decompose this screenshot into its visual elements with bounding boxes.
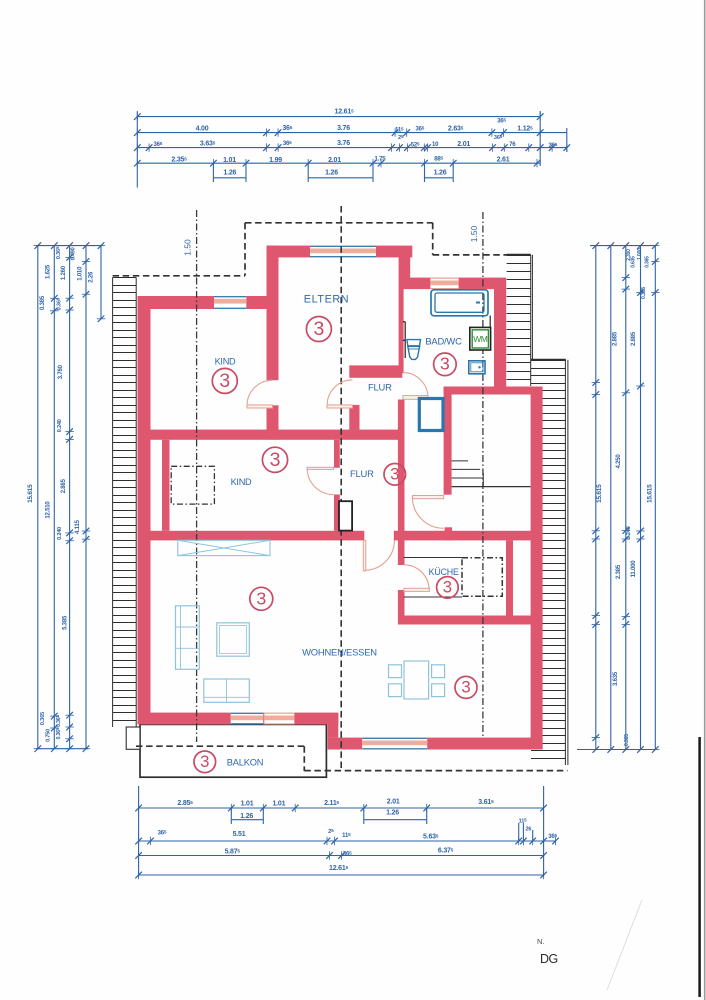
svg-text:1.010: 1.010	[77, 266, 83, 281]
svg-text:0.365: 0.365	[54, 715, 61, 727]
svg-text:25: 25	[398, 134, 404, 141]
svg-text:365: 365	[415, 125, 424, 132]
svg-text:0.365: 0.365	[40, 712, 46, 725]
svg-text:0.365: 0.365	[645, 256, 651, 268]
svg-text:FLUR: FLUR	[350, 468, 374, 479]
svg-text:2.385: 2.385	[616, 564, 622, 579]
svg-text:3.635: 3.635	[200, 140, 216, 147]
svg-text:4.250: 4.250	[616, 454, 622, 469]
svg-text:0.365: 0.365	[54, 727, 61, 739]
svg-text:1.26: 1.26	[386, 810, 399, 817]
svg-text:3: 3	[256, 588, 266, 608]
svg-text:3: 3	[270, 449, 281, 471]
svg-text:1.26: 1.26	[434, 170, 447, 177]
svg-text:WM: WM	[473, 334, 488, 344]
svg-text:N.: N.	[537, 937, 545, 946]
svg-text:1.01: 1.01	[223, 157, 236, 164]
svg-text:365: 365	[158, 829, 167, 836]
svg-text:BALKON: BALKON	[227, 757, 264, 767]
svg-text:365: 365	[548, 833, 557, 840]
svg-text:365: 365	[283, 139, 292, 146]
svg-text:KIND: KIND	[215, 357, 236, 367]
svg-text:0.635: 0.635	[631, 256, 637, 268]
svg-text:BAD/WC: BAD/WC	[425, 336, 462, 347]
svg-text:15.615: 15.615	[27, 484, 34, 503]
svg-text:3.76: 3.76	[337, 140, 350, 147]
svg-text:1.50: 1.50	[469, 225, 479, 242]
svg-text:ELTERN: ELTERN	[304, 294, 349, 306]
svg-text:3.76: 3.76	[337, 125, 350, 132]
svg-text:0.365: 0.365	[55, 246, 62, 259]
svg-text:3: 3	[219, 370, 230, 392]
svg-text:0.365: 0.365	[55, 297, 62, 310]
svg-text:76: 76	[509, 142, 516, 148]
svg-text:2.885: 2.885	[61, 478, 67, 493]
svg-text:0.385: 0.385	[40, 295, 46, 310]
svg-text:5.635: 5.635	[423, 833, 439, 840]
svg-text:0.240: 0.240	[626, 526, 632, 539]
svg-text:0.240: 0.240	[57, 419, 63, 432]
svg-text:12.615: 12.615	[329, 865, 349, 872]
svg-text:KÜCHE: KÜCHE	[429, 567, 459, 577]
svg-text:2.01: 2.01	[328, 157, 341, 164]
svg-text:3: 3	[443, 578, 452, 597]
svg-text:3: 3	[390, 465, 399, 484]
svg-text:1.26: 1.26	[240, 813, 253, 820]
svg-text:3: 3	[440, 354, 450, 374]
svg-text:0.240: 0.240	[57, 527, 63, 540]
svg-text:KIND: KIND	[231, 477, 252, 487]
svg-text:0.365: 0.365	[624, 734, 630, 746]
svg-text:11.000: 11.000	[631, 560, 637, 578]
svg-text:1.01: 1.01	[241, 800, 254, 807]
svg-text:4.115: 4.115	[75, 519, 81, 534]
svg-text:4.00: 4.00	[196, 126, 209, 133]
svg-text:FLUR: FLUR	[368, 382, 392, 393]
svg-text:2.01: 2.01	[457, 141, 470, 148]
svg-text:25: 25	[328, 828, 334, 835]
svg-text:5.385: 5.385	[62, 615, 68, 630]
svg-text:365: 365	[494, 134, 503, 141]
svg-text:12.615: 12.615	[335, 108, 355, 115]
svg-text:1.01: 1.01	[272, 800, 285, 807]
svg-text:0.490: 0.490	[71, 247, 77, 260]
svg-text:1.125: 1.125	[517, 125, 533, 132]
svg-text:12.510: 12.510	[46, 501, 52, 519]
svg-text:2.26: 2.26	[89, 271, 95, 283]
svg-text:365: 365	[497, 117, 506, 124]
svg-text:5.51: 5.51	[233, 831, 246, 838]
svg-text:10: 10	[432, 142, 439, 148]
svg-text:5.875: 5.875	[225, 848, 241, 855]
svg-text:0.365: 0.365	[641, 287, 647, 299]
svg-text:15.615: 15.615	[596, 484, 603, 503]
svg-text:3.760: 3.760	[58, 364, 64, 379]
svg-text:1.625: 1.625	[46, 264, 52, 279]
svg-text:0.750: 0.750	[46, 729, 52, 742]
svg-text:115: 115	[342, 832, 351, 839]
svg-text:1.000: 1.000	[637, 248, 643, 260]
svg-text:885: 885	[434, 155, 443, 162]
svg-text:2.61: 2.61	[497, 156, 510, 163]
svg-text:1.99: 1.99	[269, 157, 282, 164]
svg-text:2.885: 2.885	[612, 331, 618, 346]
svg-text:2.01: 2.01	[387, 798, 400, 805]
svg-text:26: 26	[525, 827, 531, 833]
svg-text:365: 365	[343, 850, 352, 857]
svg-text:DG: DG	[540, 952, 558, 966]
svg-text:2.635: 2.635	[448, 125, 464, 132]
svg-text:2.855: 2.855	[177, 799, 193, 806]
svg-text:115: 115	[519, 817, 528, 824]
svg-text:1.26: 1.26	[223, 170, 236, 177]
svg-text:3.635: 3.635	[613, 671, 619, 686]
svg-text:WOHNEN/ESSEN: WOHNEN/ESSEN	[302, 646, 377, 657]
svg-text:1.26: 1.26	[325, 170, 338, 177]
svg-text:3: 3	[200, 752, 209, 771]
svg-text:365: 365	[282, 125, 292, 132]
svg-text:6.375: 6.375	[438, 847, 454, 854]
svg-text:2.355: 2.355	[171, 156, 187, 163]
svg-text:1.75: 1.75	[375, 157, 387, 163]
svg-text:3.615: 3.615	[478, 799, 494, 806]
svg-text:2.885: 2.885	[631, 331, 637, 346]
svg-text:365: 365	[153, 140, 162, 147]
svg-text:3: 3	[461, 678, 470, 697]
svg-text:1.50: 1.50	[183, 239, 193, 256]
svg-text:1.260: 1.260	[61, 265, 67, 280]
svg-text:2.115: 2.115	[324, 800, 339, 807]
svg-text:15.615: 15.615	[647, 484, 654, 503]
svg-text:3: 3	[314, 318, 325, 340]
